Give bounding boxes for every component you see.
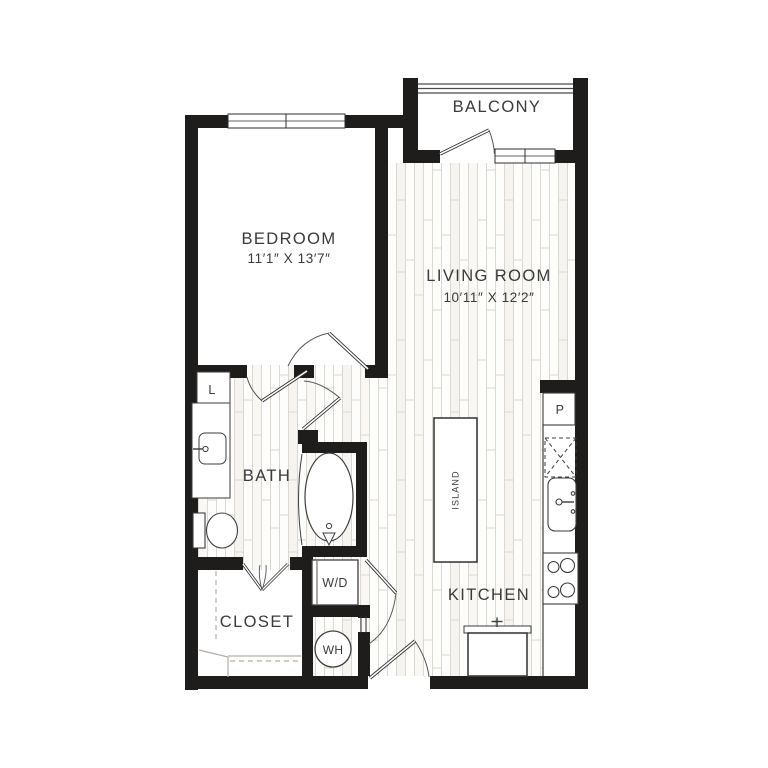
wall-bedroom-living	[375, 115, 388, 378]
closet-label: CLOSET	[220, 613, 294, 631]
living-room-label: LIVING ROOM	[426, 267, 551, 285]
wall	[290, 557, 302, 570]
stove	[543, 553, 578, 604]
tub-alcove-wall-right	[356, 442, 367, 557]
kitchen-sink	[548, 478, 576, 531]
kitchen-counter	[543, 393, 575, 676]
linen-closet-label: L	[208, 383, 215, 397]
wall	[403, 150, 440, 163]
wall	[555, 150, 588, 163]
water-heater-label: WH	[323, 643, 344, 657]
wall-stub	[298, 430, 318, 444]
balcony-label: BALCONY	[453, 98, 542, 116]
wall-bath-closet	[185, 557, 243, 570]
toilet	[193, 513, 238, 548]
wall-kitchen-stub	[540, 380, 588, 393]
island-label: ISLAND	[450, 470, 460, 509]
living-room-window	[495, 149, 555, 163]
wall-bottom-exterior	[430, 676, 588, 689]
bath-label: BATH	[243, 467, 291, 485]
tub-alcove-wall-bottom	[302, 546, 367, 557]
wall-right-exterior	[575, 150, 588, 689]
pantry-label: P	[556, 403, 565, 417]
wall	[365, 365, 388, 378]
kitchen-label: KITCHEN	[448, 586, 530, 604]
wall	[358, 612, 370, 618]
floor-plan-canvas: BALCONY BEDROOM 11′1″ X 13′7″ LIVING ROO…	[0, 0, 768, 768]
wall-bottom-exterior	[185, 676, 368, 689]
floor-plan-drawing: BALCONY BEDROOM 11′1″ X 13′7″ LIVING ROO…	[0, 0, 768, 768]
bedroom-label: BEDROOM	[241, 230, 336, 248]
washer-dryer-label: W/D	[322, 576, 348, 590]
dishwasher	[464, 618, 531, 677]
bath-vanity	[192, 403, 230, 498]
living-room-dimensions: 10′11″ X 12′2″	[443, 290, 534, 305]
bedroom-dimensions: 11′1″ X 13′7″	[248, 251, 331, 266]
wall-wh-east	[358, 632, 370, 676]
bedroom-window	[228, 114, 345, 128]
